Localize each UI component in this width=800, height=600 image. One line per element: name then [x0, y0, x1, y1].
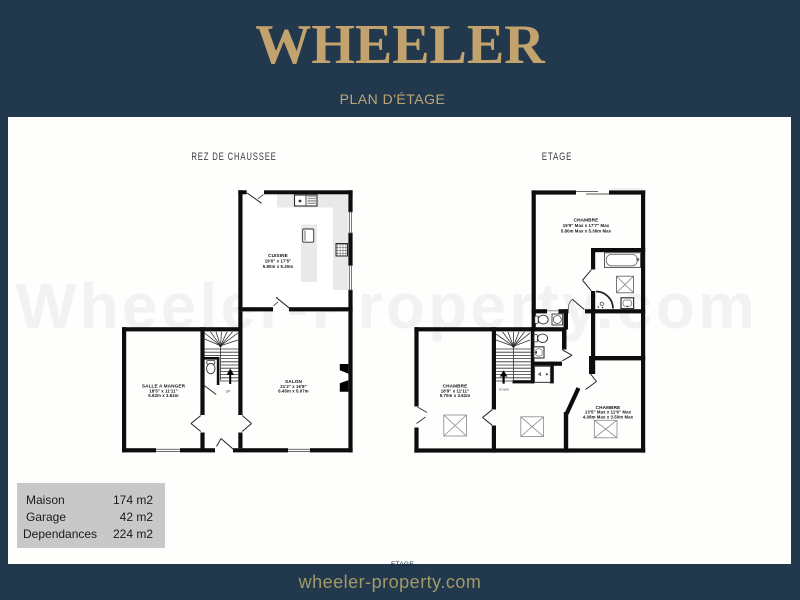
svg-text:6.45m x 5.07m: 6.45m x 5.07m [278, 389, 309, 394]
svg-text:CUISINE: CUISINE [268, 253, 288, 258]
svg-text:DOWN: DOWN [499, 388, 509, 392]
svg-text:19'9" Max x 17'7" Max: 19'9" Max x 17'7" Max [563, 223, 610, 228]
svg-text:5.80m Max x 5.36m Max: 5.80m Max x 5.36m Max [561, 229, 612, 234]
svg-text:5.80m x 5.30m: 5.80m x 5.30m [263, 264, 294, 269]
svg-text:UP: UP [226, 389, 231, 393]
svg-text:5.62m x 3.62m: 5.62m x 3.62m [148, 393, 179, 398]
svg-text:5.70m x 3.62m: 5.70m x 3.62m [440, 393, 471, 398]
svg-text:CHAMBRE: CHAMBRE [574, 217, 599, 222]
svg-text:4.08m Max x 3.50m Max: 4.08m Max x 3.50m Max [583, 414, 634, 419]
svg-text:19'0" x 17'5": 19'0" x 17'5" [265, 259, 292, 264]
